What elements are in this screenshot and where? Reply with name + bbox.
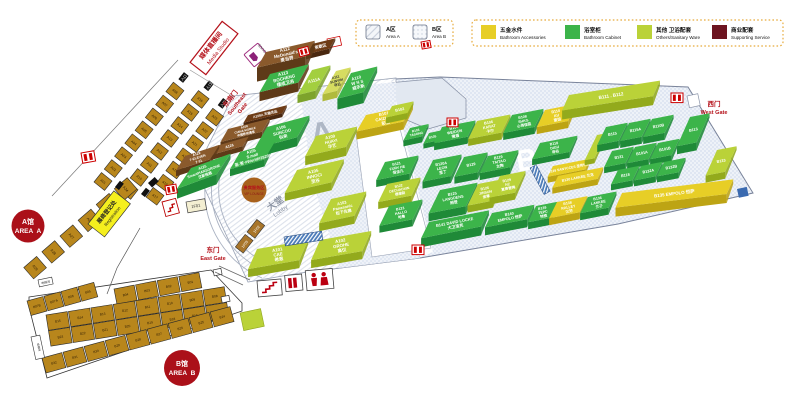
svg-text:Supporting Service: Supporting Service bbox=[731, 35, 770, 40]
svg-text:商业配套: 商业配套 bbox=[731, 26, 754, 34]
svg-text:Area B: Area B bbox=[432, 34, 446, 39]
svg-text:A区: A区 bbox=[386, 25, 396, 33]
svg-text:五金水件: 五金水件 bbox=[500, 26, 523, 34]
svg-text:East Gate: East Gate bbox=[200, 256, 225, 262]
svg-text:Area A: Area A bbox=[386, 34, 401, 39]
svg-text:西门: 西门 bbox=[708, 99, 722, 108]
svg-text:其他 卫浴配套: 其他 卫浴配套 bbox=[656, 26, 692, 34]
svg-text:B区: B区 bbox=[432, 25, 442, 33]
svg-text:AREA A: AREA A bbox=[15, 228, 42, 235]
svg-text:Others/Sanitary Ware: Others/Sanitary Ware bbox=[656, 35, 700, 40]
svg-text:AREA B: AREA B bbox=[169, 370, 196, 377]
svg-text:Bathroom Cabinet: Bathroom Cabinet bbox=[584, 35, 622, 40]
svg-text:VIP LOUNGE: VIP LOUNGE bbox=[244, 192, 263, 196]
svg-text:东门: 东门 bbox=[207, 245, 221, 254]
svg-text:浴室柜: 浴室柜 bbox=[584, 26, 601, 34]
svg-text:B馆: B馆 bbox=[176, 359, 188, 368]
svg-text:A馆: A馆 bbox=[22, 217, 34, 226]
svg-text:Bathroom Accessories: Bathroom Accessories bbox=[500, 35, 546, 40]
svg-text:贵宾服务区: 贵宾服务区 bbox=[244, 184, 266, 191]
